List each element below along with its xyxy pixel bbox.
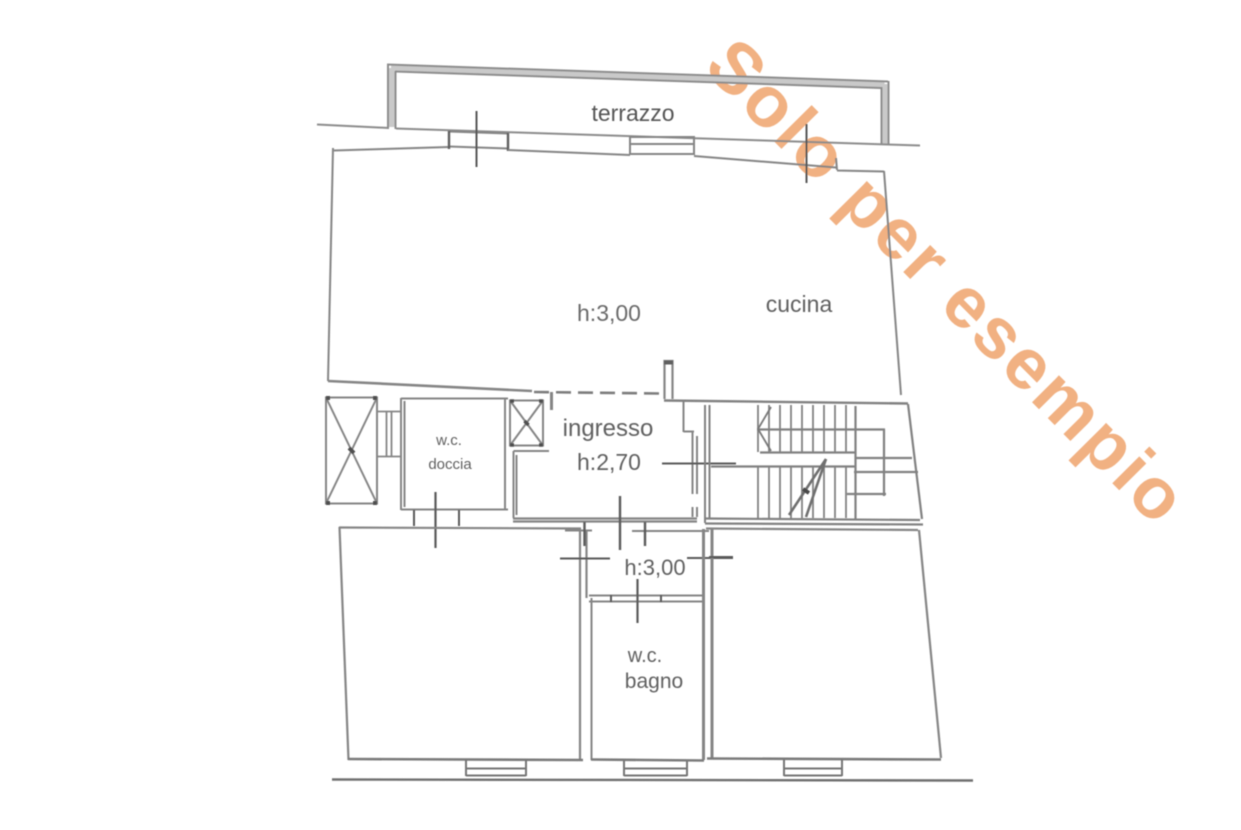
svg-text:Solo per esempio: Solo per esempio: [691, 24, 1204, 541]
svg-text:w.c.: w.c.: [435, 432, 462, 449]
svg-text:w.c.: w.c.: [627, 645, 662, 667]
svg-text:doccia: doccia: [428, 456, 472, 473]
svg-text:h:3,00: h:3,00: [624, 555, 685, 580]
svg-text:ingresso: ingresso: [563, 415, 654, 442]
svg-text:h:3,00: h:3,00: [577, 300, 641, 326]
svg-text:cucina: cucina: [766, 291, 833, 317]
svg-text:h:2,70: h:2,70: [577, 449, 641, 475]
svg-text:terrazzo: terrazzo: [591, 100, 674, 126]
svg-text:bagno: bagno: [625, 670, 683, 693]
